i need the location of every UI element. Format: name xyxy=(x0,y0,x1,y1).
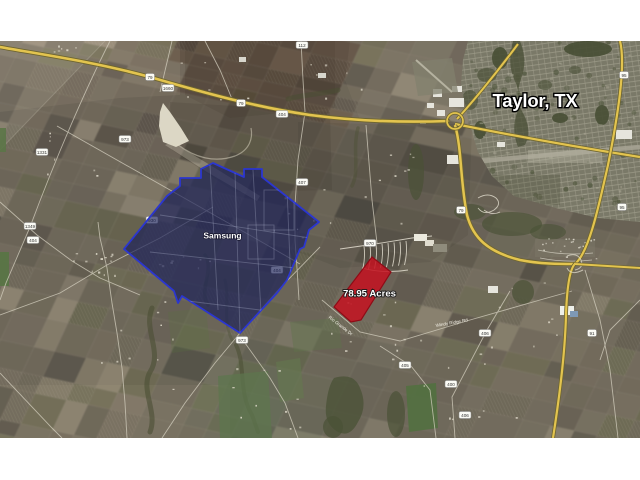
svg-text:973: 973 xyxy=(121,137,129,142)
svg-text:Samsung: Samsung xyxy=(203,231,241,241)
svg-text:406: 406 xyxy=(481,331,489,336)
svg-text:406: 406 xyxy=(461,413,469,418)
svg-text:404: 404 xyxy=(278,112,286,117)
svg-text:95: 95 xyxy=(621,73,627,78)
svg-text:970: 970 xyxy=(366,241,374,246)
svg-text:91: 91 xyxy=(589,331,595,336)
svg-text:112: 112 xyxy=(298,43,306,48)
svg-text:1331: 1331 xyxy=(37,150,48,155)
svg-text:78.95 Acres: 78.95 Acres xyxy=(343,289,396,300)
svg-text:973: 973 xyxy=(238,338,246,343)
svg-text:79: 79 xyxy=(147,75,153,80)
svg-text:95: 95 xyxy=(619,205,625,210)
svg-text:405: 405 xyxy=(401,363,409,368)
svg-text:407: 407 xyxy=(298,180,306,185)
svg-text:404: 404 xyxy=(29,238,37,243)
svg-text:79: 79 xyxy=(238,101,244,106)
svg-text:1349: 1349 xyxy=(25,224,36,229)
svg-text:Taylor, TX: Taylor, TX xyxy=(492,90,578,111)
svg-text:1660: 1660 xyxy=(163,86,174,91)
svg-text:400: 400 xyxy=(447,382,455,387)
svg-text:79: 79 xyxy=(458,208,464,213)
